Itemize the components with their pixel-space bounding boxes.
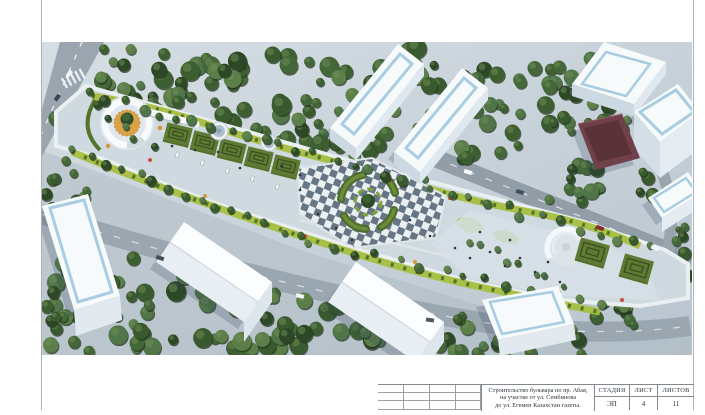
revision-cell (430, 401, 456, 410)
project-title-line3: до ул. Егемен Казахстан газеты. (495, 402, 581, 409)
project-title-line2: на участке от ул. Сембинова (500, 394, 576, 401)
revision-table (378, 385, 481, 411)
revision-cell (456, 385, 481, 393)
project-title: Строительство бульвара по пр. Абая, на у… (482, 385, 595, 411)
revision-cell (456, 401, 481, 410)
sheet-frame-left (41, 0, 42, 410)
project-title-line1: Строительство бульвара по пр. Абая, (489, 387, 588, 394)
sheets-value: 11 (658, 397, 694, 410)
revision-cell (404, 385, 430, 393)
sheet-frame-right (693, 0, 694, 410)
revision-cell (378, 393, 404, 401)
site-render (0, 0, 705, 410)
drawing-sheet: Строительство бульвара по пр. Абая, на у… (0, 0, 705, 410)
stage-label: СТАДИЯ (595, 385, 630, 397)
sheets-label: ЛИСТОВ (658, 385, 694, 397)
revision-cell (456, 393, 481, 401)
stage-sheet-table: СТАДИЯ ЛИСТ ЛИСТОВ ЭП 4 11 (595, 385, 694, 411)
revision-cell (430, 393, 456, 401)
stage-value: ЭП (595, 397, 630, 410)
revision-cell (378, 385, 404, 393)
revision-cell (404, 401, 430, 410)
park-render-svg (0, 0, 705, 410)
revision-cell (404, 393, 430, 401)
revision-cell (430, 385, 456, 393)
sheet-label: ЛИСТ (630, 385, 658, 397)
revision-cell (378, 401, 404, 410)
title-block: Строительство бульвара по пр. Абая, на у… (378, 384, 694, 411)
sheet-value: 4 (630, 397, 658, 410)
